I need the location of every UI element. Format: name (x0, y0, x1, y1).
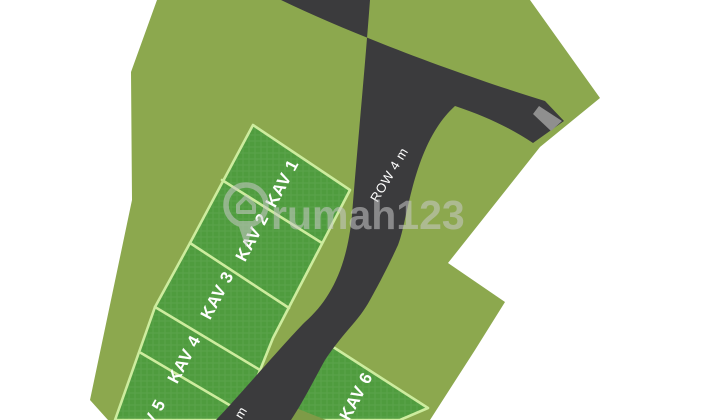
watermark-brand-text: rumah123 (271, 192, 465, 238)
site-plan-image: ROW 4 m ROW 4 m KAV 1 KAV 2 KAV 3 KAV 4 … (0, 0, 720, 420)
site-plan-svg: ROW 4 m ROW 4 m KAV 1 KAV 2 KAV 3 KAV 4 … (0, 0, 720, 420)
